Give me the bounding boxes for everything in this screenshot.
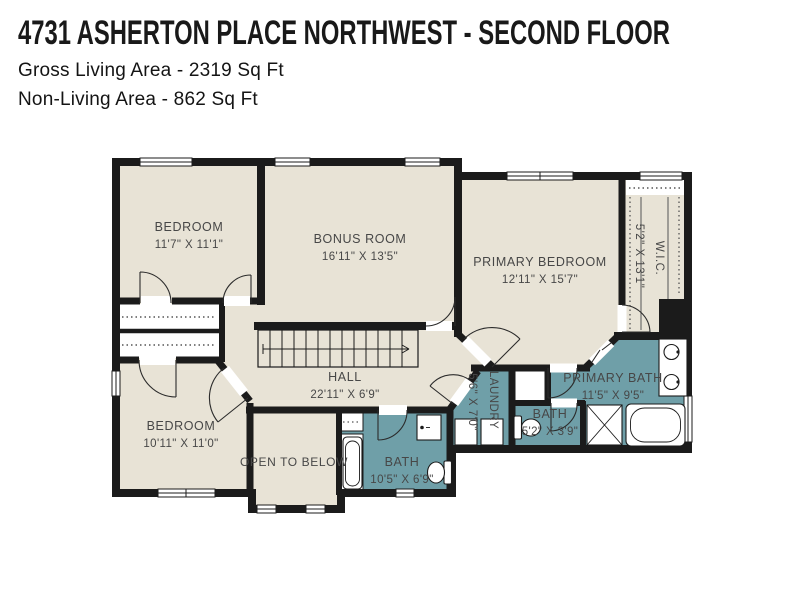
room-dims: 12'11" X 15'7": [473, 275, 607, 287]
floor-plan-page: 4731 ASHERTON PLACE NORTHWEST - SECOND F…: [0, 0, 800, 600]
room-name: BEDROOM: [143, 420, 218, 433]
room-label-bath-small: BATH 5'2" X 3'9": [522, 408, 579, 438]
double-vanity-icon: [659, 339, 687, 396]
room-label-wic: W.I.C.: [652, 241, 664, 275]
room-dims: 16'11" X 13'5": [314, 252, 407, 264]
stairs: [258, 330, 418, 367]
room-dims: 11'5" X 9'5": [563, 391, 663, 403]
room-dims-wic: 5'2" X 13'1": [632, 224, 644, 289]
room-dims: 5'2" X 3'9": [522, 427, 579, 439]
room-name: BATH: [370, 456, 433, 469]
room-label-bath: BATH 10'5" X 6'9": [370, 456, 433, 486]
primary-bathtub-icon: [626, 404, 685, 446]
room-label-laundry: LAUNDRY: [486, 371, 498, 429]
room-label-bedroom-tl: BEDROOM 11'7" X 11'1": [155, 221, 224, 251]
room-name: OPEN TO BELOW: [240, 456, 348, 468]
room-dims: 22'11" X 6'9": [310, 390, 379, 402]
sink-icon: [417, 415, 441, 440]
room-name: BEDROOM: [155, 221, 224, 234]
room-label-bedroom-bl: BEDROOM 10'11" X 11'0": [143, 420, 218, 450]
shower-icon: [587, 405, 622, 445]
room-dims-laundry: 5'6" X 7'0": [465, 373, 477, 431]
room-name: PRIMARY BEDROOM: [473, 256, 607, 269]
room-label-bonus-room: BONUS ROOM 16'11" X 13'5": [314, 233, 407, 263]
room-dims: 10'5" X 6'9": [370, 475, 433, 487]
room-name: PRIMARY BATH: [563, 372, 663, 385]
room-label-primary-bath: PRIMARY BATH 11'5" X 9'5": [563, 372, 663, 402]
floor-plan-drawing: [0, 0, 800, 600]
room-dims: 11'7" X 11'1": [155, 240, 224, 252]
room-dims: 10'11" X 11'0": [143, 439, 218, 451]
room-label-open-to-below: OPEN TO BELOW: [240, 456, 348, 468]
room-label-hall: HALL 22'11" X 6'9": [310, 371, 379, 401]
room-name: HALL: [310, 371, 379, 384]
room-label-primary-bedroom: PRIMARY BEDROOM 12'11" X 15'7": [473, 256, 607, 286]
room-name: BONUS ROOM: [314, 233, 407, 246]
room-name: BATH: [522, 408, 579, 421]
